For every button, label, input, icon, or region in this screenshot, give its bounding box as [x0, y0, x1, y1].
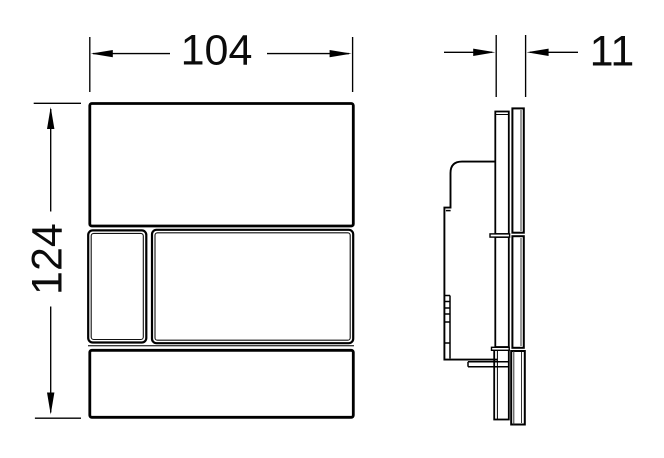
svg-text:124: 124 — [24, 223, 72, 295]
svg-text:11: 11 — [590, 28, 635, 76]
svg-text:104: 104 — [181, 26, 253, 74]
